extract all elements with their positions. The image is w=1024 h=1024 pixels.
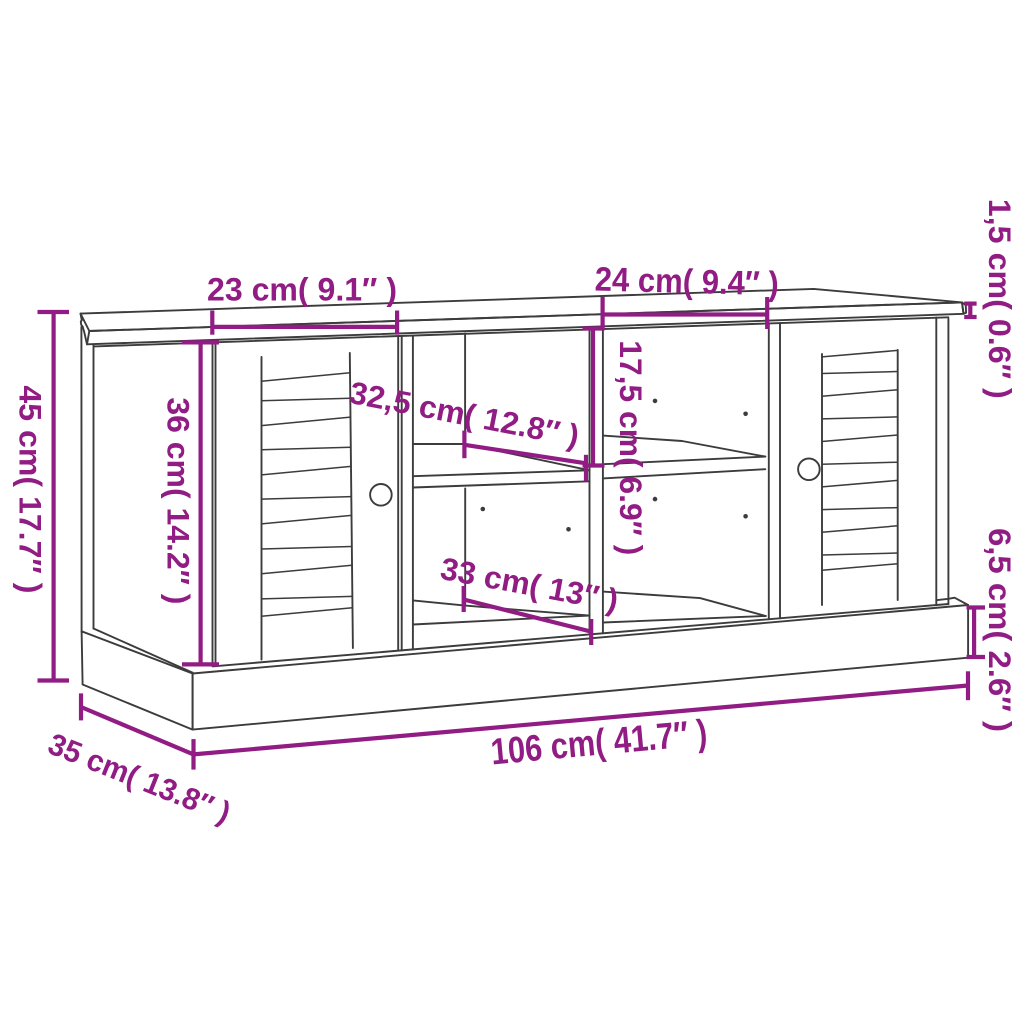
svg-text:35 cm( 13.8″ ): 35 cm( 13.8″ ) bbox=[43, 727, 235, 830]
svg-text:17,5 cm( 6.9″ ): 17,5 cm( 6.9″ ) bbox=[613, 340, 649, 555]
svg-text:23 cm( 9.1″ ): 23 cm( 9.1″ ) bbox=[207, 272, 397, 308]
svg-text:45 cm( 17.7″ ): 45 cm( 17.7″ ) bbox=[13, 385, 49, 593]
svg-text:1,5 cm( 0.6″ ): 1,5 cm( 0.6″ ) bbox=[982, 199, 1018, 399]
svg-text:6,5 cm( 2.6″ ): 6,5 cm( 2.6″ ) bbox=[982, 528, 1018, 732]
svg-text:24 cm( 9.4″ ): 24 cm( 9.4″ ) bbox=[594, 261, 779, 304]
svg-text:106 cm( 41.7″ ): 106 cm( 41.7″ ) bbox=[489, 712, 709, 772]
svg-text:36 cm( 14.2″ ): 36 cm( 14.2″ ) bbox=[161, 397, 197, 604]
